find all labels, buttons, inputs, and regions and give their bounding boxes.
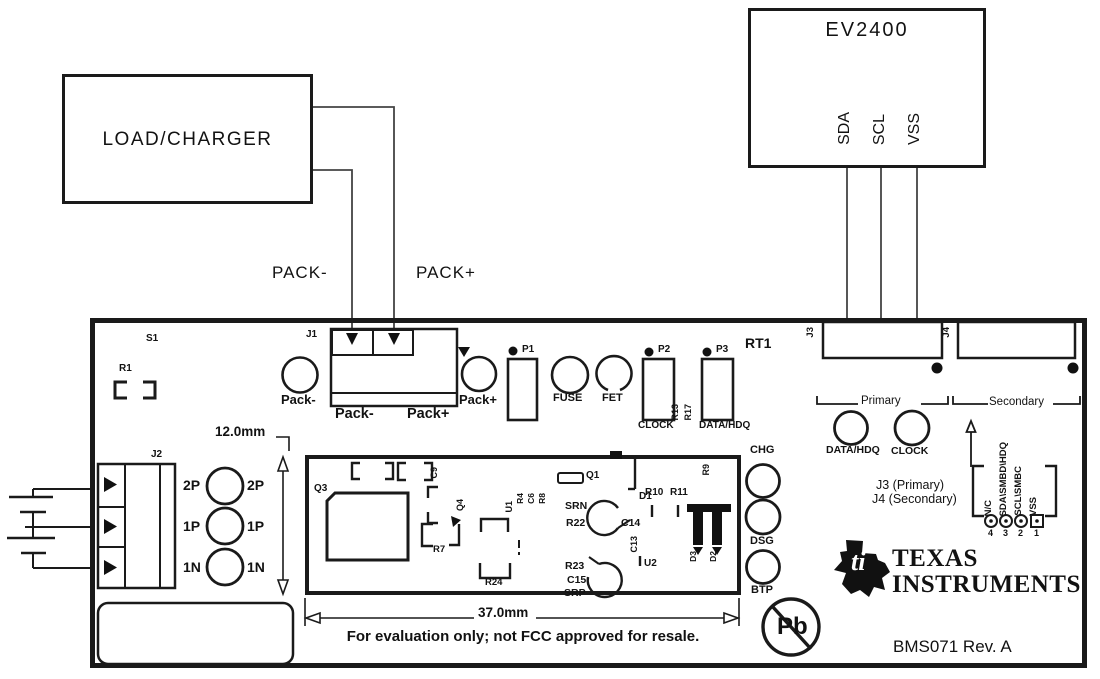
ref-r24: R24: [485, 578, 502, 588]
data-hdq-led-label: DATA/HDQ: [826, 445, 880, 456]
j2-2p-right: 2P: [247, 478, 264, 492]
load-charger-box: LOAD/CHARGER: [62, 74, 313, 204]
pad-pack-plus-label: Pack+: [459, 393, 497, 406]
ref-srp: SRP: [564, 588, 586, 599]
load-charger-label: LOAD/CHARGER: [102, 130, 272, 149]
secondary-label: Secondary: [989, 397, 1044, 409]
ref-j1: J1: [306, 330, 317, 340]
ref-c13: C13: [630, 536, 639, 553]
ref-c6: C6: [527, 493, 536, 504]
j2-1p-left: 1P: [183, 519, 200, 533]
ref-c14: C14: [621, 518, 640, 529]
pin-num-3: 3: [1003, 529, 1008, 538]
p3-data-hdq-label: DATA/HDQ: [699, 421, 750, 431]
bms071-evm-diagram: LOAD/CHARGER EV2400 SDA SCL VSS PACK- PA…: [0, 0, 1100, 679]
ev2400-pin-vss: VSS: [907, 113, 923, 145]
ref-p3: P3: [716, 345, 728, 355]
led-btp-label: BTP: [751, 585, 773, 596]
ref-q4: Q4: [456, 499, 465, 511]
j2-connector: [98, 464, 175, 588]
fet-label: FET: [602, 393, 623, 404]
pin-num-2: 2: [1018, 529, 1023, 538]
pin-label-nc: N/C: [984, 500, 994, 516]
ref-rt1: RT1: [745, 336, 771, 350]
status-led-circles: [746, 465, 780, 584]
ref-d2: D2: [709, 551, 718, 562]
j4-secondary-note: J4 (Secondary): [872, 493, 957, 506]
pack-plus-arrow: [458, 347, 470, 357]
ref-r17: R17: [684, 404, 693, 421]
ref-r22: R22: [566, 518, 585, 529]
ev2400-box: EV2400: [748, 8, 986, 168]
pinout-callout: [967, 421, 1057, 527]
ref-r23: R23: [565, 561, 584, 572]
pin-label-scl-smbc: SCL\SMBC: [1014, 466, 1024, 516]
board-id: BMS071 Rev. A: [893, 638, 1012, 655]
j1-connector: [331, 329, 457, 406]
ref-r7: R7: [433, 545, 445, 555]
pin-num-1: 1: [1034, 529, 1039, 538]
fet-arc: [597, 356, 632, 390]
brand-texas: TEXAS: [892, 546, 978, 571]
ref-u1: U1: [505, 501, 514, 513]
fuse-label: FUSE: [553, 393, 582, 404]
pad-pack-minus-label: Pack-: [281, 393, 316, 406]
ref-p2: P2: [658, 345, 670, 355]
ti-bug-text: ti: [851, 549, 865, 575]
r1-pads: [115, 382, 155, 398]
ref-srn: SRN: [565, 501, 587, 512]
dim-width-label: 37.0mm: [478, 606, 528, 620]
ref-r8: R8: [538, 493, 547, 504]
eval-note: For evaluation only; not FCC approved fo…: [305, 629, 741, 644]
ref-j2: J2: [151, 450, 162, 460]
p2-clock-label: CLOCK: [638, 421, 674, 431]
ev2400-pin-scl: SCL: [872, 114, 888, 145]
dim-height-lines: [276, 437, 289, 594]
module-components: [327, 463, 731, 597]
j2-1n-right: 1N: [247, 560, 265, 574]
brand-instruments: INSTRUMENTS: [892, 572, 1081, 597]
ref-r11: R11: [670, 488, 688, 498]
ref-c15: C15: [567, 575, 586, 586]
ref-q3: Q3: [314, 484, 327, 494]
ref-c9: C9: [430, 467, 439, 479]
j2-1n-left: 1N: [183, 560, 201, 574]
battery-symbol: [7, 489, 90, 568]
ref-j4: J4: [942, 327, 952, 338]
pack-minus-wire-label: PACK-: [272, 264, 328, 281]
j2-2p-left: 2P: [183, 478, 200, 492]
gauge-module: [307, 451, 739, 593]
dim-height-label: 12.0mm: [215, 425, 265, 439]
pin-label-sda-smbd-hdq: SDA\SMBD\HDQ: [999, 442, 1009, 516]
ref-r4: R4: [516, 493, 525, 504]
ref-q1: Q1: [586, 471, 599, 481]
ref-s1: S1: [146, 334, 158, 344]
j2-1p-right: 1P: [247, 519, 264, 533]
led-chg-label: CHG: [750, 445, 774, 456]
ref-p1: P1: [522, 345, 534, 355]
ref-j3: J3: [806, 327, 816, 338]
cell-pads: [207, 468, 243, 585]
ref-r13: R13: [671, 404, 680, 421]
ev2400-pin-sda: SDA: [837, 112, 853, 145]
pack-plus-wire-label: PACK+: [416, 264, 476, 281]
pin-label-vss: VSS: [1029, 497, 1039, 516]
j1-pack-minus-label: Pack-: [335, 407, 374, 422]
pb-label: Pb: [777, 615, 808, 639]
ref-r10: R10: [645, 488, 663, 498]
ev2400-label: EV2400: [825, 20, 908, 40]
pack-wires: [307, 107, 394, 330]
pin-num-4: 4: [988, 529, 993, 538]
clock-led-label: CLOCK: [891, 446, 928, 457]
ev2400-wires: [847, 162, 917, 322]
ref-u2: U2: [644, 559, 657, 569]
comm-led-circles: [835, 411, 930, 445]
led-dsg-label: DSG: [750, 536, 774, 547]
j1-pack-plus-label: Pack+: [407, 407, 449, 422]
ref-r1: R1: [119, 364, 132, 374]
primary-label: Primary: [861, 396, 901, 408]
ref-r9: R9: [702, 464, 711, 476]
keepout-area: [98, 603, 293, 664]
j3-primary-note: J3 (Primary): [876, 479, 944, 492]
ref-d3: D3: [689, 551, 698, 562]
